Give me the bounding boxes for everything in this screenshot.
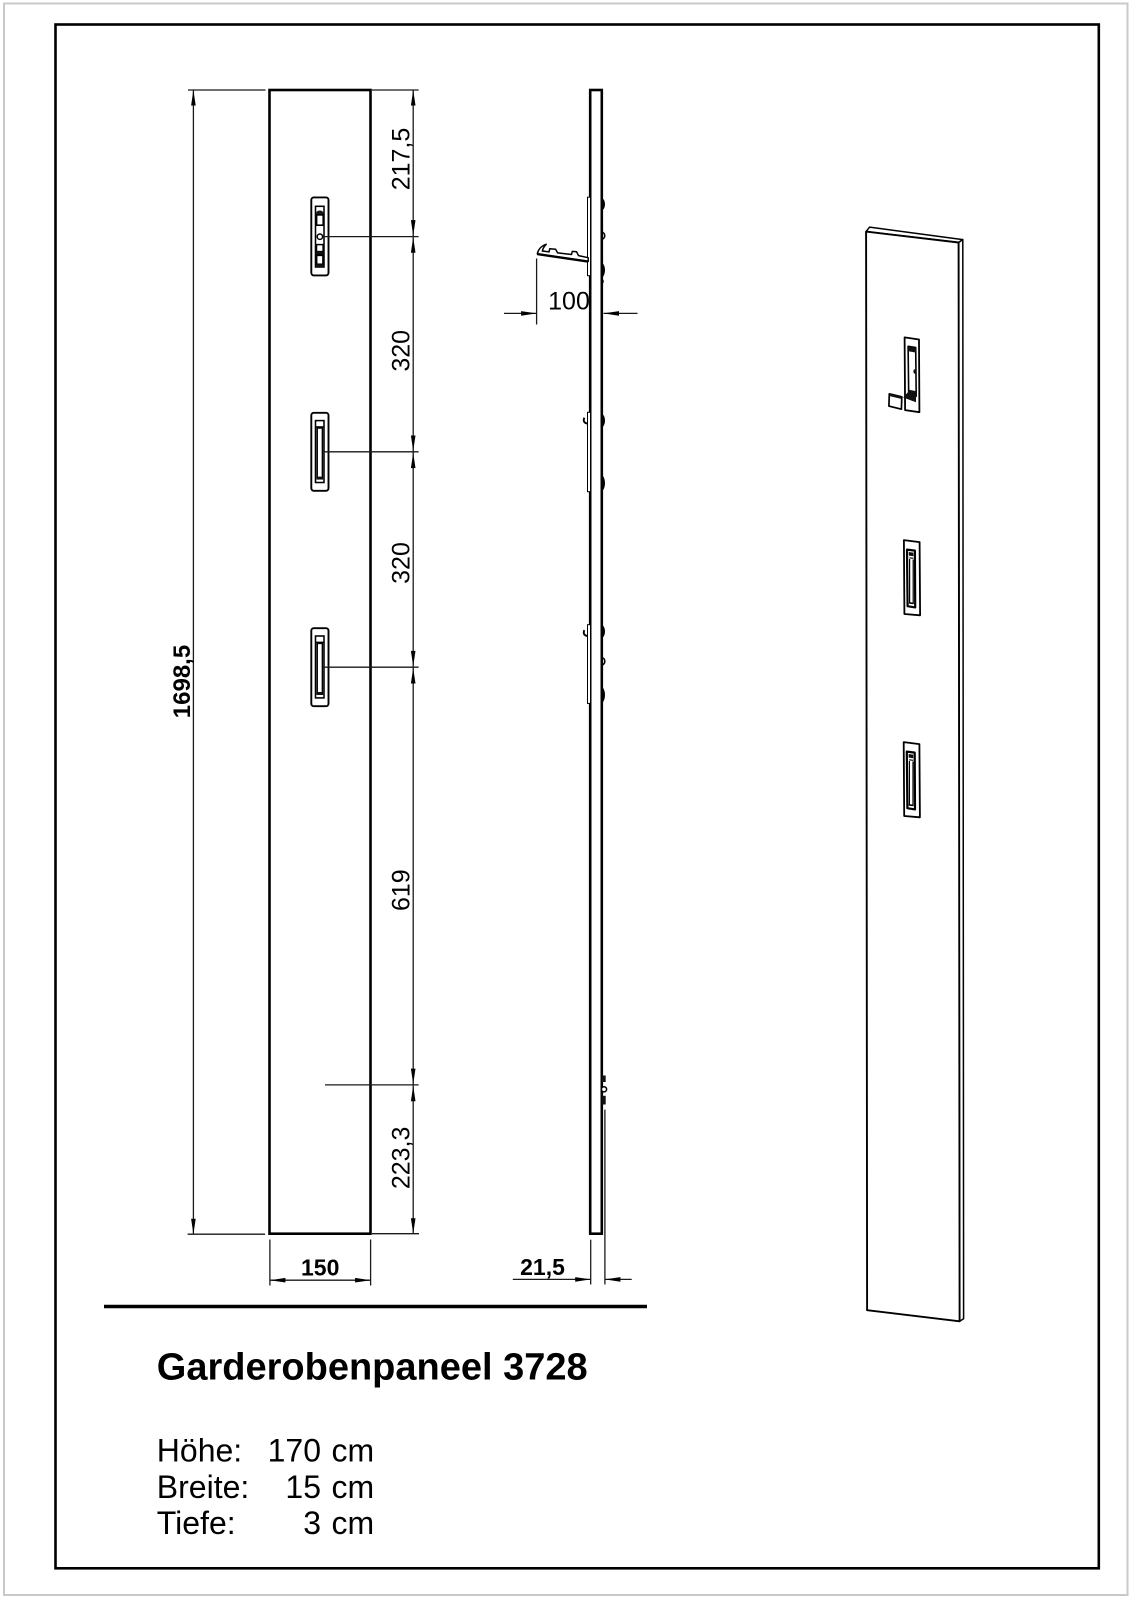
svg-text:Breite:: Breite:	[157, 1469, 249, 1505]
svg-text:3: 3	[303, 1505, 321, 1541]
svg-text:223,3: 223,3	[388, 1127, 416, 1190]
svg-text:1698,5: 1698,5	[169, 645, 196, 718]
svg-text:100: 100	[548, 288, 590, 316]
svg-text:619: 619	[388, 869, 416, 911]
svg-text:cm: cm	[332, 1433, 375, 1469]
svg-text:170: 170	[268, 1433, 321, 1469]
svg-text:320: 320	[388, 542, 416, 584]
svg-text:21,5: 21,5	[520, 1254, 565, 1280]
svg-text:Tiefe:: Tiefe:	[157, 1505, 236, 1541]
svg-text:Höhe:: Höhe:	[157, 1433, 242, 1469]
svg-text:15: 15	[285, 1469, 321, 1505]
svg-text:150: 150	[301, 1254, 339, 1280]
svg-text:320: 320	[388, 330, 416, 372]
svg-text:Garderobenpaneel 3728: Garderobenpaneel 3728	[157, 1346, 588, 1388]
svg-text:217,5: 217,5	[388, 128, 416, 191]
svg-text:cm: cm	[332, 1505, 375, 1541]
svg-text:cm: cm	[332, 1469, 375, 1505]
